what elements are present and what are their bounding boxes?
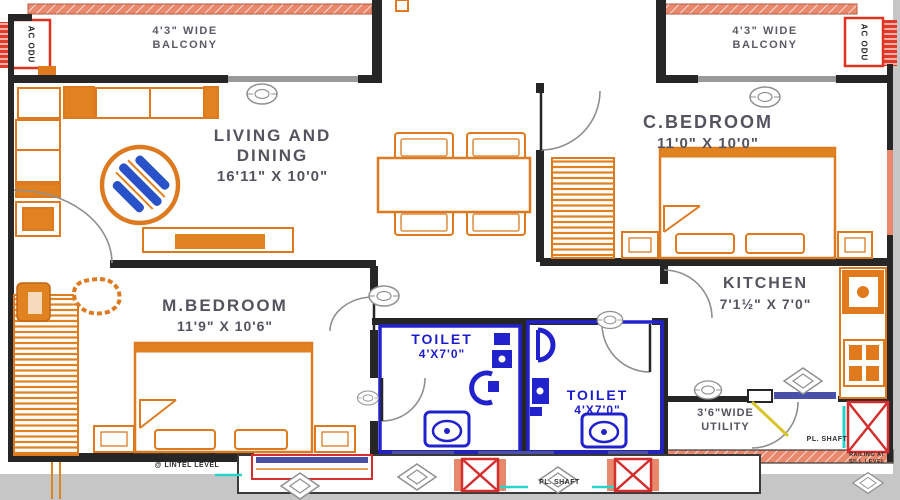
plumbing-shaft-icon: [615, 459, 651, 491]
living-dims: 16'11" X 10'0": [175, 168, 370, 185]
balcony-left-label: 4'3" WIDE BALCONY: [100, 24, 270, 52]
mbedroom-window: [252, 455, 372, 479]
toilet-1-label: TOILET 4'X7'0": [392, 331, 492, 361]
balcony-left-line1: 4'3" WIDE: [100, 24, 270, 38]
right-gray-band: [893, 0, 900, 500]
balcony-right-label: 4'3" WIDE BALCONY: [680, 24, 850, 52]
floor-plan: 4'3" WIDE BALCONY 4'3" WIDE BALCONY AC O…: [0, 0, 900, 500]
utility-line2: UTILITY: [668, 420, 783, 434]
c-bedroom-name: C.BEDROOM: [598, 112, 818, 133]
chajja-line1: CHAJJA HIGHT: [126, 452, 248, 461]
kitchen-dims: 7'1½" X 7'0": [678, 296, 853, 312]
mbedroom-bed: [135, 343, 312, 452]
ac-odu-right-label: AC ODU: [845, 18, 883, 66]
toilet-2-name: TOILET: [545, 387, 650, 403]
toilet-1-name: TOILET: [392, 331, 492, 347]
living-round-table: [102, 147, 178, 223]
pl-shaft-utility-label: PL. SHAFT: [796, 435, 858, 444]
chajja-note: CHAJJA HIGHT @ LINTEL LEVEL: [126, 452, 248, 470]
balcony-right-line1: 4'3" WIDE: [680, 24, 850, 38]
dining-set: [378, 133, 530, 235]
living-tv-console: [143, 228, 293, 252]
toilet-1-dims: 4'X7'0": [392, 347, 492, 361]
kitchen-name: KITCHEN: [678, 274, 853, 293]
living-name-line1: LIVING AND: [175, 126, 370, 146]
utility-label: 3'6"WIDE UTILITY: [668, 406, 783, 434]
railing-line2: SILL LEVEL: [836, 459, 898, 466]
utility-line1: 3'6"WIDE: [668, 406, 783, 420]
cbedroom-wardrobe: [552, 158, 614, 258]
balcony-right-line2: BALCONY: [680, 38, 850, 52]
plumbing-shaft-icon: [848, 402, 888, 452]
toilet-2-dims: 4'X7'0": [545, 403, 650, 417]
cbedroom-bed: [660, 148, 835, 258]
m-bedroom-name: M.BEDROOM: [130, 296, 320, 316]
plumbing-shaft-icon: [462, 459, 498, 491]
c-bedroom-label: C.BEDROOM 11'0" X 10'0": [598, 112, 818, 152]
pl-shaft-bottom-label: PL. SHAFT: [512, 478, 607, 487]
living-dining-label: LIVING AND DINING 16'11" X 10'0": [175, 126, 370, 185]
kitchen-label: KITCHEN 7'1½" X 7'0": [678, 274, 853, 312]
c-bedroom-dims: 11'0" X 10'0": [598, 135, 818, 152]
railing-line1: RAILING AT: [836, 452, 898, 459]
ac-odu-left-label: AC ODU: [12, 20, 50, 68]
balcony-left-line2: BALCONY: [100, 38, 270, 52]
living-name-line2: DINING: [175, 146, 370, 166]
chajja-line2: @ LINTEL LEVEL: [126, 461, 248, 470]
m-bedroom-label: M.BEDROOM 11'9" X 10'6": [130, 296, 320, 334]
m-bedroom-dims: 11'9" X 10'6": [130, 318, 320, 334]
toilet-2-label: TOILET 4'X7'0": [545, 387, 650, 417]
railing-note: RAILING AT SILL LEVEL: [836, 452, 898, 466]
